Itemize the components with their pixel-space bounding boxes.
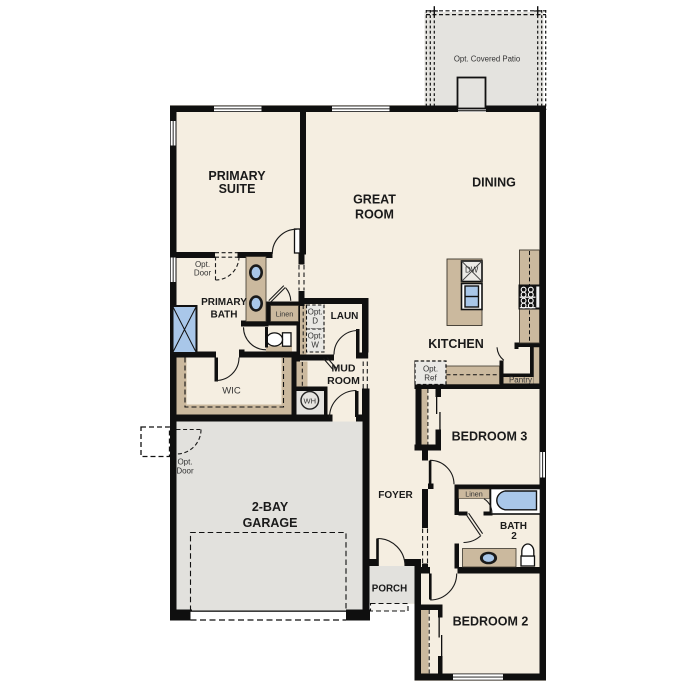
svg-text:DW: DW	[465, 266, 479, 275]
svg-text:PORCH: PORCH	[372, 584, 407, 595]
svg-text:GREAT: GREAT	[353, 193, 396, 207]
svg-text:MUD: MUD	[332, 363, 356, 375]
svg-text:WH: WH	[304, 396, 317, 405]
svg-text:DINING: DINING	[472, 176, 516, 190]
svg-text:2-BAY: 2-BAY	[252, 500, 289, 514]
svg-text:Opt.: Opt.	[308, 332, 323, 341]
svg-text:LAUN: LAUN	[331, 311, 359, 322]
svg-text:Opt.: Opt.	[423, 365, 438, 374]
svg-text:WIC: WIC	[222, 386, 241, 397]
svg-text:ROOM: ROOM	[355, 208, 394, 222]
svg-text:KITCHEN: KITCHEN	[428, 337, 484, 351]
svg-text:Opt.: Opt.	[177, 458, 192, 467]
svg-text:Linen: Linen	[465, 490, 483, 499]
svg-text:ROOM: ROOM	[327, 375, 360, 387]
svg-text:W: W	[311, 341, 319, 350]
svg-text:D: D	[312, 317, 318, 326]
svg-text:PRIMARY: PRIMARY	[208, 169, 266, 183]
svg-text:Opt. Covered Patio: Opt. Covered Patio	[454, 55, 521, 64]
svg-text:Pantry: Pantry	[509, 376, 532, 385]
svg-text:Linen: Linen	[276, 310, 294, 319]
svg-text:2: 2	[511, 531, 517, 542]
svg-text:SUITE: SUITE	[219, 182, 256, 196]
svg-text:BEDROOM 2: BEDROOM 2	[453, 615, 529, 629]
svg-text:Door: Door	[176, 467, 194, 476]
svg-text:BEDROOM 3: BEDROOM 3	[452, 430, 528, 444]
svg-text:FOYER: FOYER	[378, 490, 413, 501]
svg-text:Ref: Ref	[424, 374, 437, 383]
svg-text:Opt.: Opt.	[308, 308, 323, 317]
svg-text:PRIMARY: PRIMARY	[201, 297, 247, 308]
svg-text:BATH: BATH	[210, 310, 237, 321]
svg-text:Door: Door	[194, 269, 212, 278]
svg-text:GARAGE: GARAGE	[243, 516, 298, 530]
